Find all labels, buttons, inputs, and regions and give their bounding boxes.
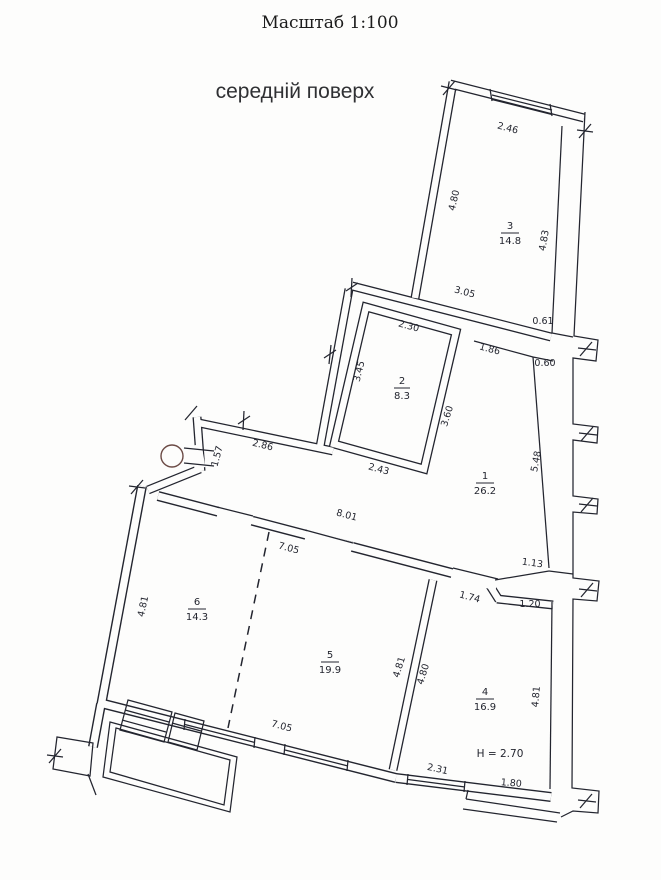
floorplan-page: Масштаб 1:100 середній поверх 1 26.2 2 8… (0, 0, 661, 880)
dim-0-61: 0.61 (532, 316, 553, 327)
room6-area: 14.3 (186, 612, 208, 623)
floor-plan-svg: Масштаб 1:100 середній поверх 1 26.2 2 8… (0, 0, 661, 880)
dim-4-81-w54: 4.81 (391, 656, 408, 679)
floor-subtitle: середній поверх (216, 80, 375, 103)
room6-number: 6 (194, 597, 200, 608)
room1-area: 26.2 (474, 486, 496, 497)
column-circle-symbol (161, 445, 183, 467)
dim-1-20: 1.20 (519, 599, 540, 610)
room5-area: 19.9 (319, 665, 341, 676)
window-symbols (184, 89, 552, 792)
room4-number: 4 (482, 687, 488, 698)
dim-1-74: 1.74 (458, 590, 481, 606)
dim-1-80: 1.80 (500, 777, 522, 790)
dim-2-43: 2.43 (367, 462, 390, 478)
room3-area: 14.8 (499, 236, 521, 247)
dim-7-05-bottom: 7.05 (270, 719, 293, 735)
room2-number: 2 (399, 376, 405, 387)
dim-7-05-top: 7.05 (277, 541, 300, 557)
room3-number: 3 (507, 221, 513, 232)
partition-dashed-line (228, 532, 269, 728)
dim-2-31: 2.31 (426, 762, 449, 777)
height-note: H = 2.70 (477, 748, 524, 760)
dim-8-01: 8.01 (335, 508, 358, 524)
room4-area: 16.9 (474, 702, 496, 713)
dim-0-60: 0.60 (534, 358, 555, 369)
titles: Масштаб 1:100 середній поверх (216, 13, 399, 103)
walls-outline-layer (93, 82, 584, 797)
room2-area: 8.3 (394, 391, 410, 402)
dim-4-83: 4.83 (537, 229, 552, 252)
dim-1-13: 1.13 (521, 557, 543, 571)
dim-4-81-r4: 4.81 (530, 686, 543, 708)
dim-1-57: 1.57 (210, 445, 226, 468)
dim-2-46: 2.46 (496, 121, 519, 137)
room5-number: 5 (327, 650, 333, 661)
scale-title: Масштаб 1:100 (261, 13, 398, 33)
dim-4-80-r3: 4.80 (447, 189, 462, 212)
room1-number: 1 (482, 471, 488, 482)
room-labels: 1 26.2 2 8.3 3 14.8 4 16.9 5 19.9 6 14.3… (186, 221, 524, 760)
dim-3-05: 3.05 (453, 285, 476, 301)
dim-4-81-r6: 4.81 (136, 595, 151, 618)
